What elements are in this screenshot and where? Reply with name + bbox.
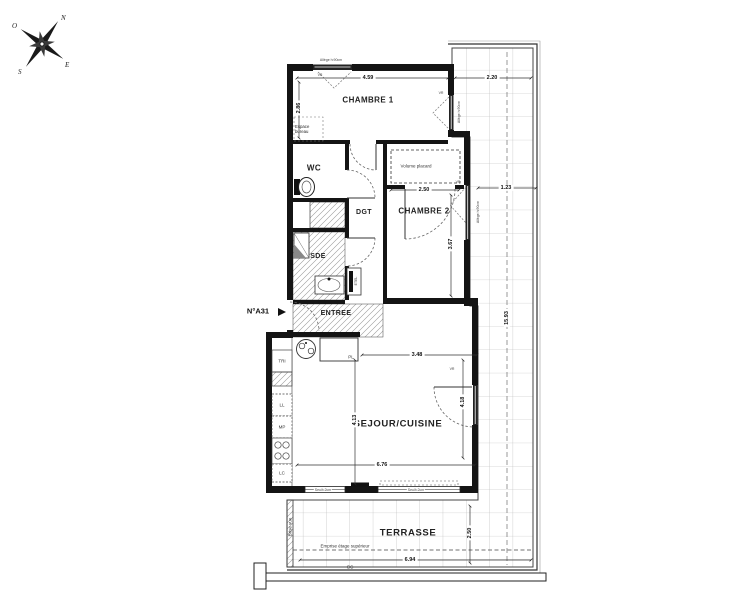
allege-label-right1: Allège h:90cm <box>457 101 461 123</box>
room-label-dgt: DGT <box>356 209 372 217</box>
room-label-wc: WC <box>307 163 321 172</box>
allege-label-right2: Allège h:90cm <box>476 201 480 223</box>
dim-chambre2-width: 2.50 <box>417 187 432 193</box>
allege-label-top: Allège h:90cm <box>320 58 342 62</box>
dim-terrasse-top: 2.20 <box>485 75 500 81</box>
toilet-bowl <box>299 178 315 197</box>
dim-chambre1-height: 2.86 <box>296 101 302 116</box>
room-label-entree: ENTREE <box>321 310 352 318</box>
dim-sejour-width: 6.76 <box>375 462 390 468</box>
brise-vue-label: Brise vue <box>287 518 292 537</box>
mp-label: MP <box>279 424 286 429</box>
dim-chambre1-width: 4.59 <box>361 75 376 81</box>
unit-number-label: N°A31 <box>247 308 269 317</box>
compass-rose: N O S E <box>12 14 70 76</box>
emprise-label: Emprise étage supérieur <box>319 543 370 548</box>
room-label-chambre1: CHAMBRE 1 <box>342 95 393 104</box>
espace-bureau-label: Espace bureau <box>295 125 321 135</box>
room-label-chambre2: CHAMBRE 2 <box>398 206 449 215</box>
dim-terrasse-right: 1.23 <box>499 185 514 191</box>
lc-label: LC <box>279 470 285 475</box>
dim-terrasse-depth: 2.50 <box>467 526 473 541</box>
tri-label: TRI <box>278 358 285 363</box>
ll-label: LL <box>279 402 284 407</box>
dim-terrasse-height: 15.93 <box>504 309 510 327</box>
pl-label: PL <box>348 354 354 359</box>
dim-sejour-top: 3.48 <box>410 352 425 358</box>
volume-placard-label: Volume placard <box>400 163 431 168</box>
entrance-arrow-icon <box>278 308 286 316</box>
dim-sejour-right: 4.18 <box>460 395 466 410</box>
dim-terrasse-width: 6.94 <box>403 557 418 563</box>
room-label-sejour: SEJOUR/CUISINE <box>354 420 443 431</box>
room-label-sde: SDE <box>310 253 326 261</box>
vr-label-chambre2: VR <box>456 180 461 184</box>
compass-s-label: S <box>18 68 22 76</box>
seuil-label-1: Seuil<2cm <box>314 488 332 492</box>
cooktop <box>272 438 292 464</box>
vr-label-chambre1-top: VR <box>318 73 323 77</box>
compass-e-label: E <box>64 61 70 69</box>
vr-label-chambre1-right: VR <box>439 91 444 95</box>
compass-n-label: N <box>60 14 66 22</box>
floor-plan: N O S E CHAMBRE 1 WC DGT CHAMBRE 2 SDE E… <box>0 0 733 600</box>
compass-o-label: O <box>12 22 17 30</box>
dim-chambre2-height: 3.67 <box>448 237 454 252</box>
etel-label: ETEL <box>354 277 358 286</box>
seuil-label-2: Seuil<2cm <box>407 488 425 492</box>
floor-plan-svg: N O S E <box>0 0 733 600</box>
vr-label-sejour: VR <box>450 367 455 371</box>
gc-label: GC <box>347 564 354 569</box>
room-label-terrasse: TERRASSE <box>380 529 437 540</box>
dim-sejour-left: 4.13 <box>352 413 358 428</box>
